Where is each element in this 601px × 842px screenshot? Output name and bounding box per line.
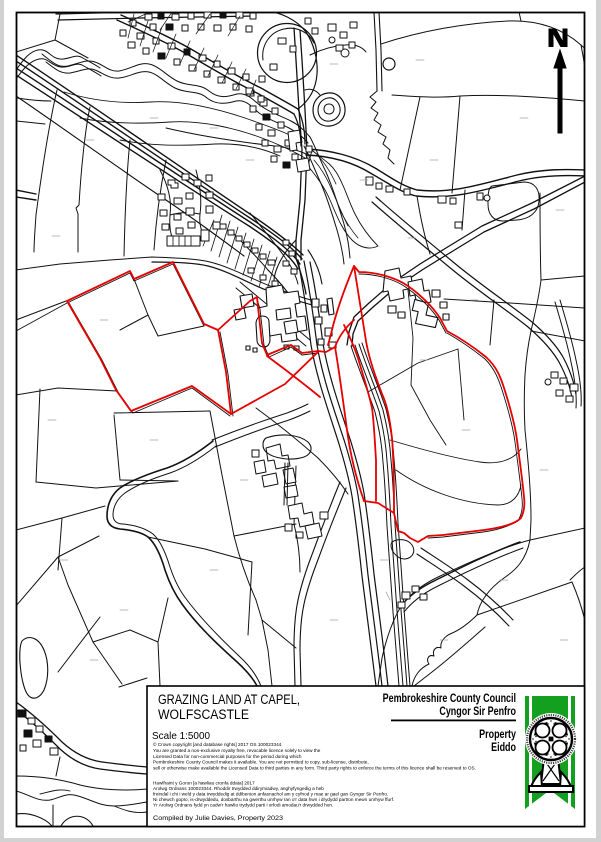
svg-text:freindal i chi i weld y data t: freindal i chi i weld y data trwyddedig …: [153, 792, 388, 797]
svg-text:You are granted a non-exclusiv: You are granted a non-exclusive royalty …: [153, 748, 321, 753]
svg-text:Cyngor Sir Penfro: Cyngor Sir Penfro: [439, 706, 516, 718]
svg-text:Arolwg Ordnans 100023344. Rhod: Arolwg Ordnans 100023344. Rhoddir trwydd…: [153, 786, 324, 791]
svg-text:Ni chewch gopïo, is-drwyddedu,: Ni chewch gopïo, is-drwyddedu, dosbarthu…: [153, 797, 394, 802]
svg-text:Yr Arolwg Ordnans fydd yn cadw: Yr Arolwg Ordnans fydd yn cadw'r hawlio …: [153, 803, 333, 808]
svg-text:Licensed Data for non-commerci: Licensed Data for non-commercial purpose…: [153, 754, 302, 759]
svg-text:Property: Property: [479, 729, 516, 741]
svg-text:Compiled by Julie Davies, Prop: Compiled by Julie Davies, Property 2023: [153, 815, 283, 822]
svg-text:Pembrokeshire County Council: Pembrokeshire County Council: [383, 693, 516, 705]
svg-text:© Crown copyright [and databas: © Crown copyright [and database rights] …: [153, 741, 283, 747]
svg-text:Hawlfraint y Goron [a hawliau: Hawlfraint y Goron [a hawliau cronfa dda…: [153, 781, 255, 786]
svg-text:Eiddo: Eiddo: [491, 742, 516, 754]
svg-text:WOLFSCASTLE: WOLFSCASTLE: [158, 707, 249, 722]
svg-text:Scale 1:5000: Scale 1:5000: [152, 730, 210, 742]
svg-text:sell or otherwise make availab: sell or otherwise make available the Lic…: [153, 766, 476, 771]
svg-text:Pembrokeshire County Council m: Pembrokeshire County Council makes it av…: [153, 760, 369, 765]
svg-text:GRAZING LAND AT CAPEL,: GRAZING LAND AT CAPEL,: [158, 692, 300, 707]
